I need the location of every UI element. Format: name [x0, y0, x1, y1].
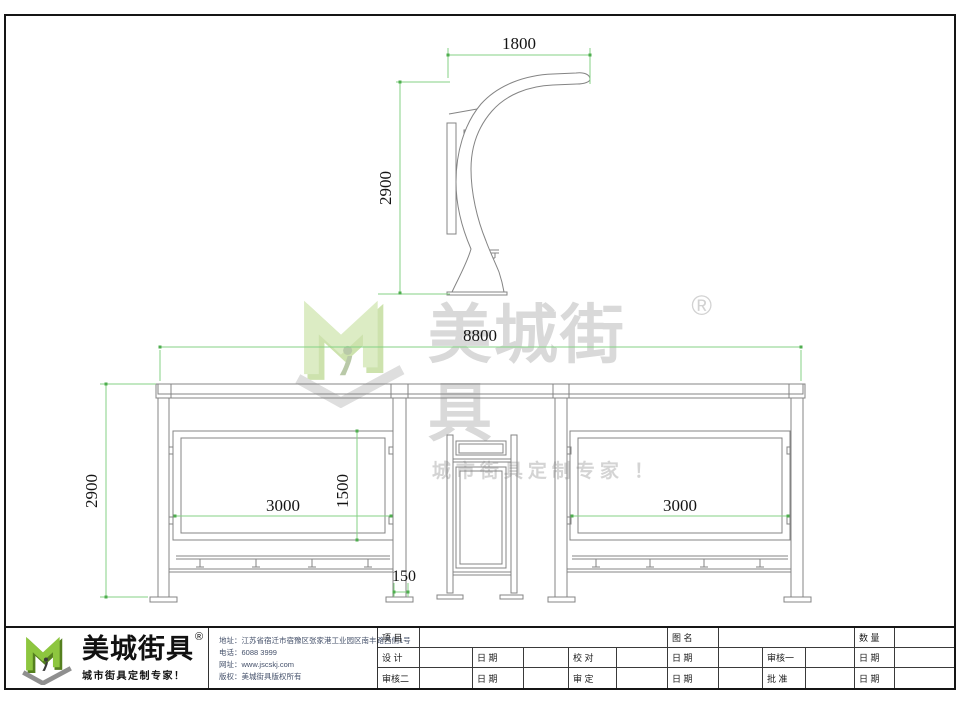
front-dim-8800	[160, 347, 801, 381]
contact-info: 地址：江苏省宿迁市宿豫区张家港工业园区南丰路西侧1号 电话：6088 3999 …	[208, 628, 377, 688]
field-review1-label: 审核一	[763, 648, 806, 668]
field-design-value	[420, 648, 473, 668]
company-registered-mark: ®	[195, 631, 203, 643]
field-ratify-value	[806, 668, 855, 688]
cad-drawing: 1800 2900	[0, 0, 960, 704]
field-review1-value	[806, 648, 855, 668]
side-dim-left-label: 2900	[376, 171, 395, 205]
field-proofread-value	[617, 648, 668, 668]
field-date-value	[719, 668, 763, 688]
front-view: 8800 2900 3000 3000 1500 150	[82, 326, 811, 602]
front-dim-height-label: 2900	[82, 474, 101, 508]
contact-website: 网址：www.jscskj.com	[219, 659, 377, 671]
field-review2-label: 审核二	[378, 668, 420, 688]
field-date-label: 日 期	[473, 668, 524, 688]
field-date-value	[524, 668, 569, 688]
title-block: 美城街具 ® 城市街具定制专家！ 地址：江苏省宿迁市宿豫区张家港工业园区南丰路西…	[4, 626, 956, 690]
front-dim-post-label: 150	[392, 568, 416, 585]
field-drawing-name-value	[719, 628, 855, 648]
company-tagline: 城市街具定制专家！	[82, 667, 203, 682]
field-date-value	[524, 648, 569, 668]
title-block-table: 项 目 图 名 数 量 设 计 日 期 校 对 日 期 审核一 日 期 审核二 …	[377, 628, 954, 688]
company-logo-icon	[16, 631, 78, 685]
side-view: 1800 2900	[376, 34, 592, 295]
field-review2-value	[420, 668, 473, 688]
canopy-profile	[452, 73, 590, 292]
field-quantity-value	[895, 628, 954, 648]
field-date-label: 日 期	[855, 668, 895, 688]
front-dim-panel-height-label: 1500	[333, 474, 352, 508]
field-date-value	[719, 648, 763, 668]
field-approve-label: 审 定	[569, 668, 617, 688]
contact-phone: 电话：6088 3999	[219, 647, 377, 659]
field-drawing-name-label: 图 名	[668, 628, 719, 648]
front-dim-2900	[100, 384, 156, 597]
field-proofread-label: 校 对	[569, 648, 617, 668]
field-ratify-label: 批 准	[763, 668, 806, 688]
field-approve-value	[617, 668, 668, 688]
company-logo-block: 美城街具 ® 城市街具定制专家！	[6, 628, 208, 688]
side-dim-top-label: 1800	[502, 34, 536, 53]
front-dim-width-label: 8800	[463, 326, 497, 345]
field-quantity-label: 数 量	[855, 628, 895, 648]
field-project-value	[420, 628, 668, 648]
field-date-label: 日 期	[855, 648, 895, 668]
field-date-label: 日 期	[473, 648, 524, 668]
field-date-value	[895, 648, 954, 668]
drawing-sheet: 美城街具 ® 城市街具定制专家 ！	[0, 0, 960, 704]
field-date-label: 日 期	[668, 668, 719, 688]
field-date-value	[895, 668, 954, 688]
field-design-label: 设 计	[378, 648, 420, 668]
field-date-label: 日 期	[668, 648, 719, 668]
contact-copyright: 版权：美城街具版权所有	[219, 671, 377, 683]
company-brand: 美城街具	[82, 634, 194, 664]
contact-address: 地址：江苏省宿迁市宿豫区张家港工业园区南丰路西侧1号	[219, 635, 377, 647]
field-project-label: 项 目	[378, 628, 420, 648]
front-dim-right-panel-label: 3000	[663, 496, 697, 515]
front-dim-left-panel-label: 3000	[266, 496, 300, 515]
